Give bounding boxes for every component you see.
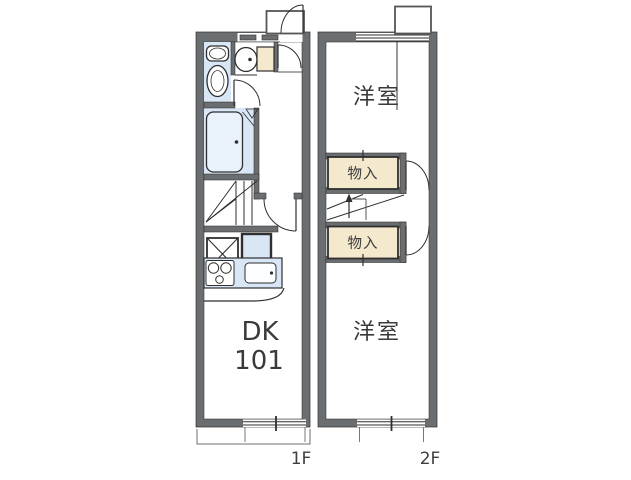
room-type-label: DK bbox=[241, 317, 279, 347]
wall-segment bbox=[204, 174, 259, 180]
floor-label-1f: 1F bbox=[291, 449, 312, 469]
kitchen-counter bbox=[204, 258, 282, 288]
wall-segment bbox=[294, 193, 302, 199]
room-label-top: 洋室 bbox=[353, 85, 401, 110]
wall-segment bbox=[254, 108, 259, 199]
vent-window bbox=[262, 35, 278, 40]
wall-segment bbox=[204, 226, 278, 232]
dimension-bracket bbox=[197, 429, 310, 444]
kitchen-sink bbox=[245, 263, 276, 283]
wall-segment bbox=[204, 102, 235, 108]
toilet bbox=[207, 46, 229, 97]
closet-label-bottom: 物入 bbox=[348, 235, 379, 252]
vent-window bbox=[240, 35, 256, 40]
unit-2f: 洋室 物入 物入 洋室 2F bbox=[318, 7, 440, 470]
gas-stove bbox=[206, 261, 234, 286]
wall-segment bbox=[400, 222, 406, 263]
shoe-cabinet bbox=[257, 47, 274, 71]
room-label-bottom: 洋室 bbox=[353, 320, 401, 345]
wall-segment bbox=[254, 193, 266, 199]
floor-plan-canvas: DK 101 1F bbox=[0, 0, 631, 480]
wall-segment bbox=[400, 153, 406, 194]
window-2f-bottom bbox=[357, 416, 425, 442]
window-1f bbox=[243, 416, 306, 442]
bay-projection bbox=[395, 7, 431, 34]
closet-label-top: 物入 bbox=[348, 166, 379, 183]
room-number-label: 101 bbox=[234, 346, 284, 376]
unit-1f: DK 101 1F bbox=[196, 5, 311, 469]
entrance-porch bbox=[267, 11, 305, 34]
floor-label-2f: 2F bbox=[420, 449, 441, 469]
floor-plan: DK 101 1F bbox=[0, 0, 631, 480]
